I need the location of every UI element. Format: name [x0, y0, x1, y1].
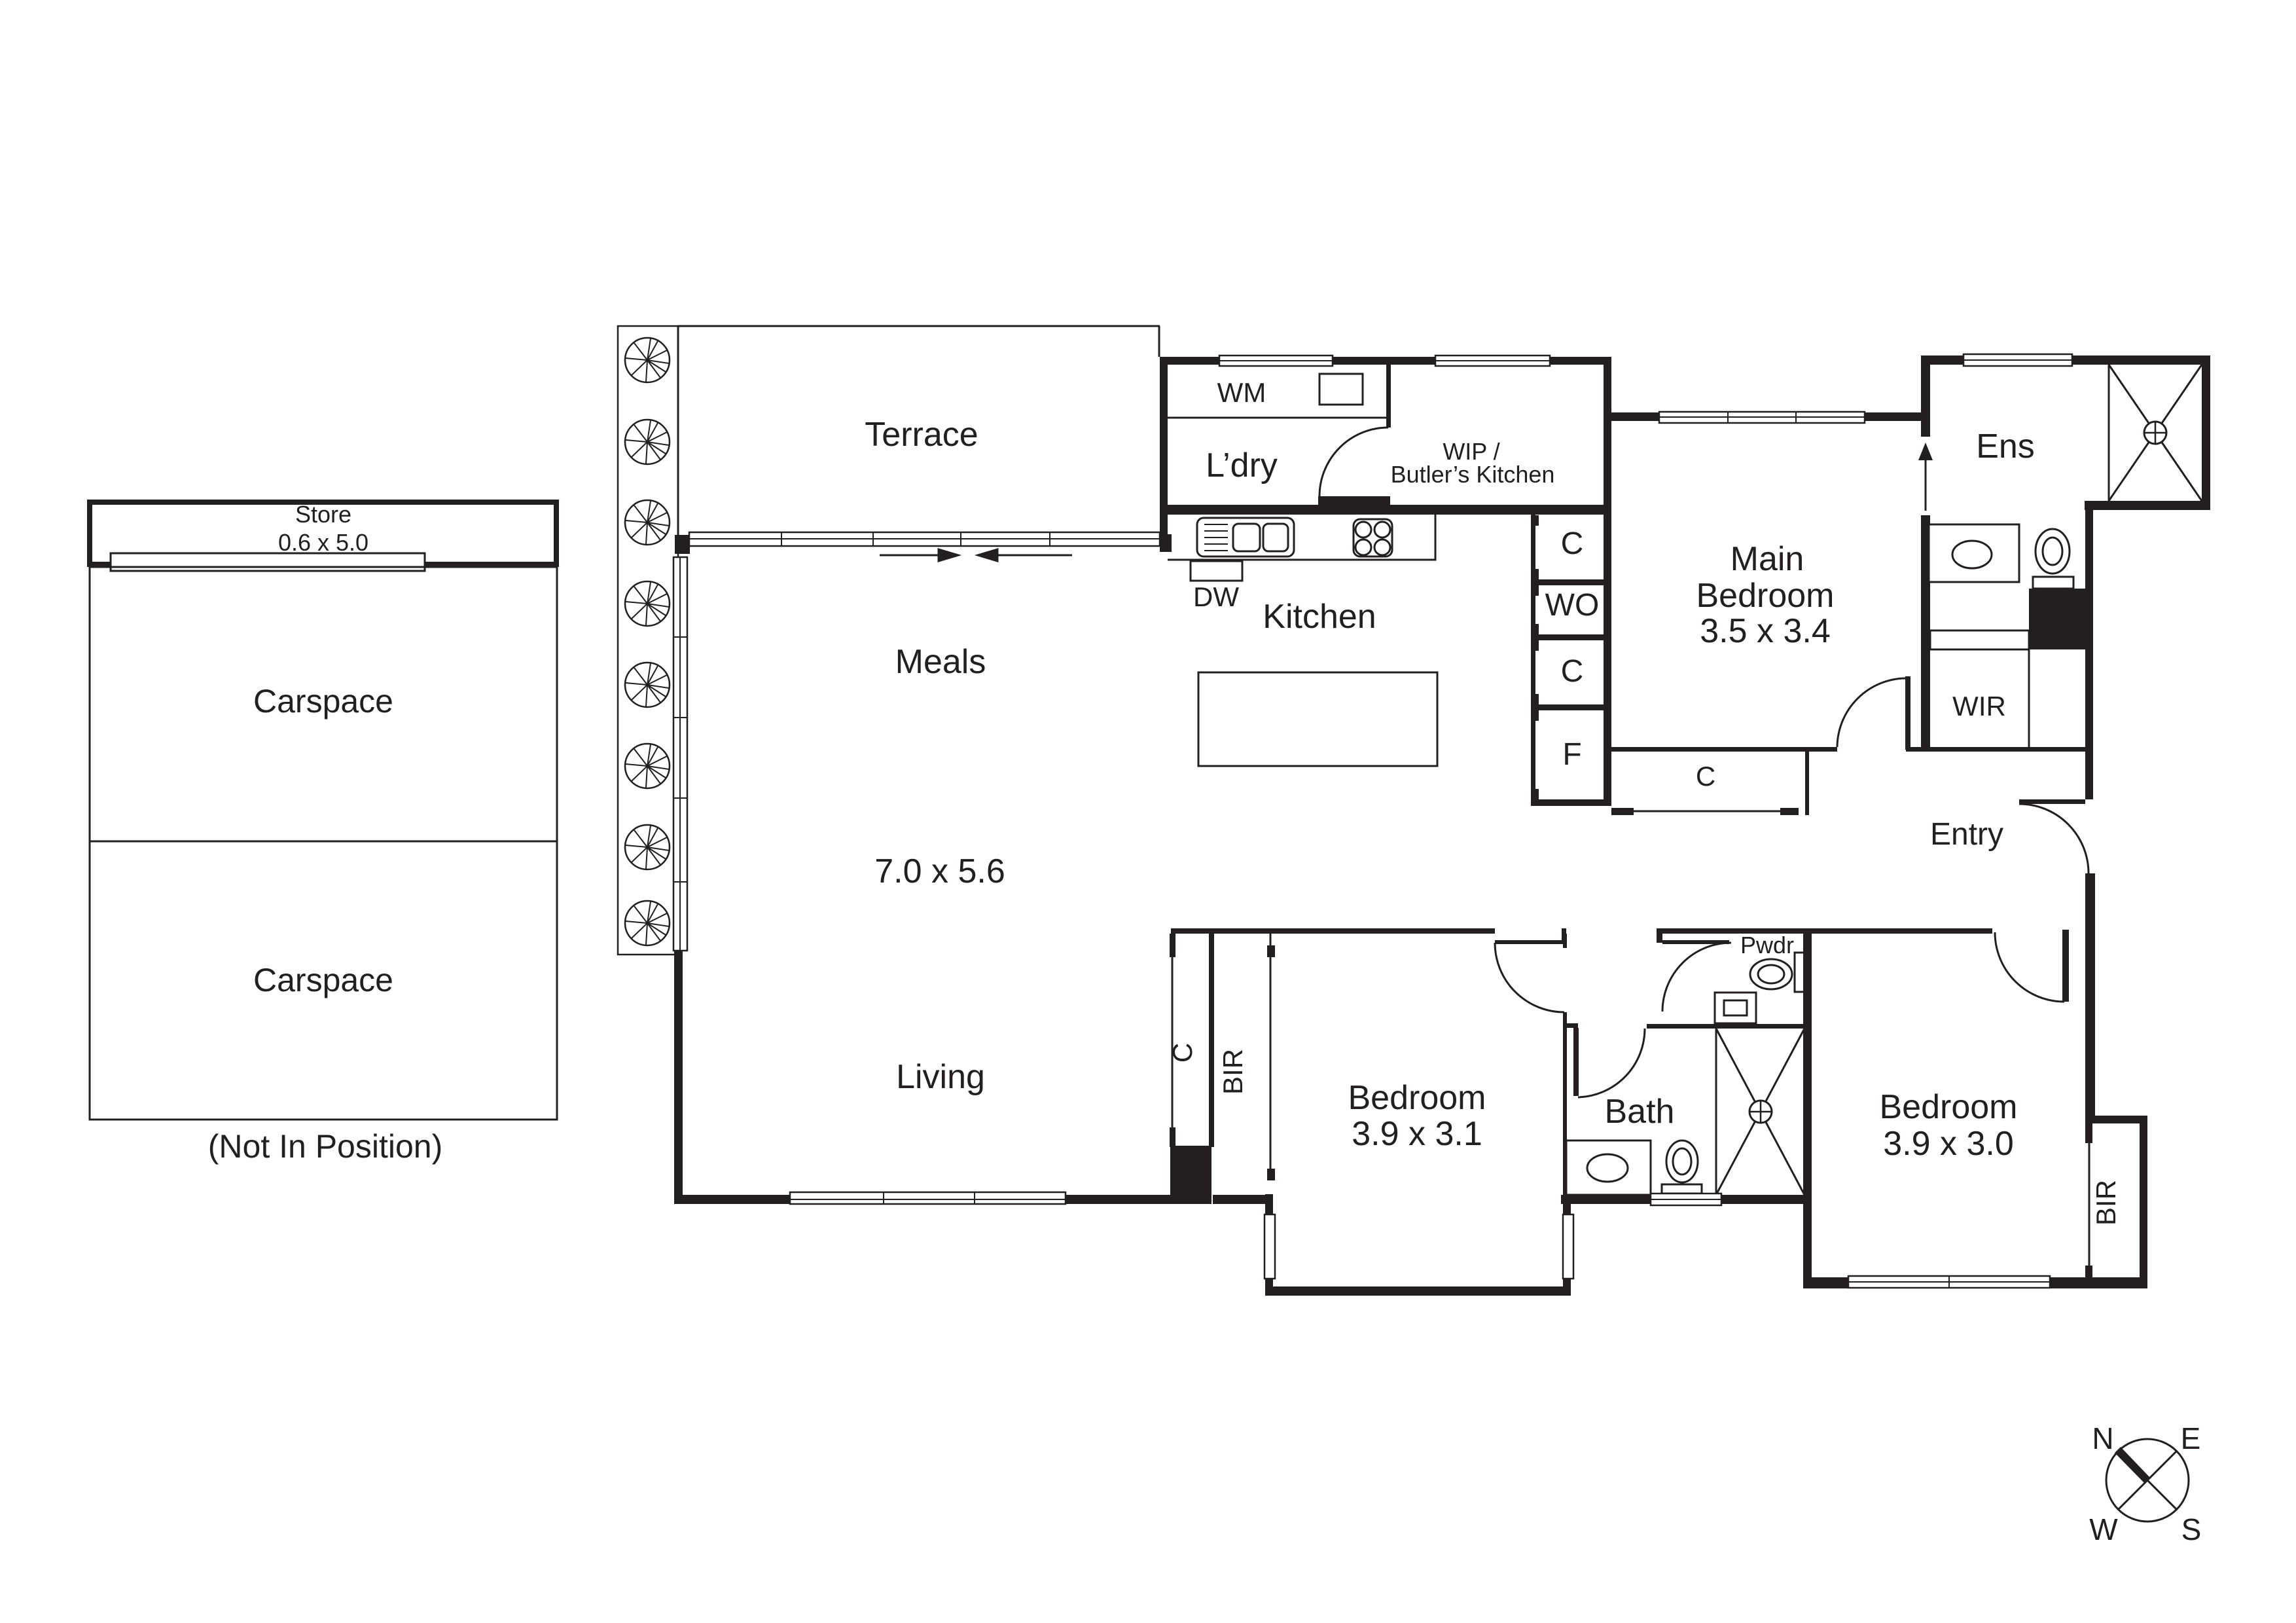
- svg-text:0.6 x 5.0: 0.6 x 5.0: [278, 529, 368, 556]
- svg-text:Meals: Meals: [895, 643, 986, 681]
- svg-text:3.9 x 3.0: 3.9 x 3.0: [1883, 1125, 2013, 1163]
- svg-text:Entry: Entry: [1930, 817, 2003, 852]
- svg-text:Bath: Bath: [1605, 1093, 1675, 1131]
- svg-text:Terrace: Terrace: [865, 416, 978, 454]
- svg-text:WM: WM: [1217, 377, 1266, 408]
- svg-text:Kitchen: Kitchen: [1263, 598, 1376, 636]
- svg-text:3.9 x 3.1: 3.9 x 3.1: [1352, 1115, 1482, 1153]
- svg-text:BIR: BIR: [1217, 1049, 1248, 1095]
- svg-text:3.5 x 3.4: 3.5 x 3.4: [1700, 612, 1830, 650]
- svg-text:S: S: [2181, 1512, 2202, 1546]
- svg-text:C: C: [1561, 654, 1584, 689]
- svg-text:Carspace: Carspace: [253, 962, 393, 998]
- svg-text:C: C: [1696, 761, 1715, 792]
- svg-text:E: E: [2181, 1421, 2201, 1455]
- svg-text:DW: DW: [1193, 581, 1239, 612]
- svg-text:Bedroom: Bedroom: [1880, 1088, 2018, 1126]
- svg-text:WIR: WIR: [1952, 691, 2006, 721]
- svg-text:F: F: [1562, 737, 1581, 772]
- svg-text:W: W: [2089, 1512, 2118, 1546]
- svg-text:(Not In Position): (Not In Position): [208, 1128, 442, 1165]
- svg-text:Bedroom: Bedroom: [1348, 1079, 1486, 1117]
- svg-text:Store: Store: [295, 501, 351, 528]
- svg-text:C: C: [1561, 526, 1584, 561]
- svg-text:N: N: [2092, 1421, 2113, 1455]
- svg-text:C: C: [1167, 1043, 1198, 1063]
- svg-text:BIR: BIR: [2090, 1180, 2121, 1226]
- svg-text:Pwdr: Pwdr: [1740, 932, 1794, 958]
- svg-text:L’dry: L’dry: [1206, 447, 1278, 484]
- svg-text:Bedroom: Bedroom: [1696, 577, 1835, 615]
- svg-text:7.0 x 5.6: 7.0 x 5.6: [874, 852, 1005, 890]
- svg-text:Butler’s Kitchen: Butler’s Kitchen: [1391, 461, 1555, 488]
- svg-text:Carspace: Carspace: [253, 683, 393, 720]
- svg-text:Main: Main: [1731, 540, 1804, 578]
- svg-text:WO: WO: [1545, 588, 1600, 623]
- svg-text:Living: Living: [896, 1058, 985, 1096]
- svg-text:Ens: Ens: [1976, 428, 2035, 465]
